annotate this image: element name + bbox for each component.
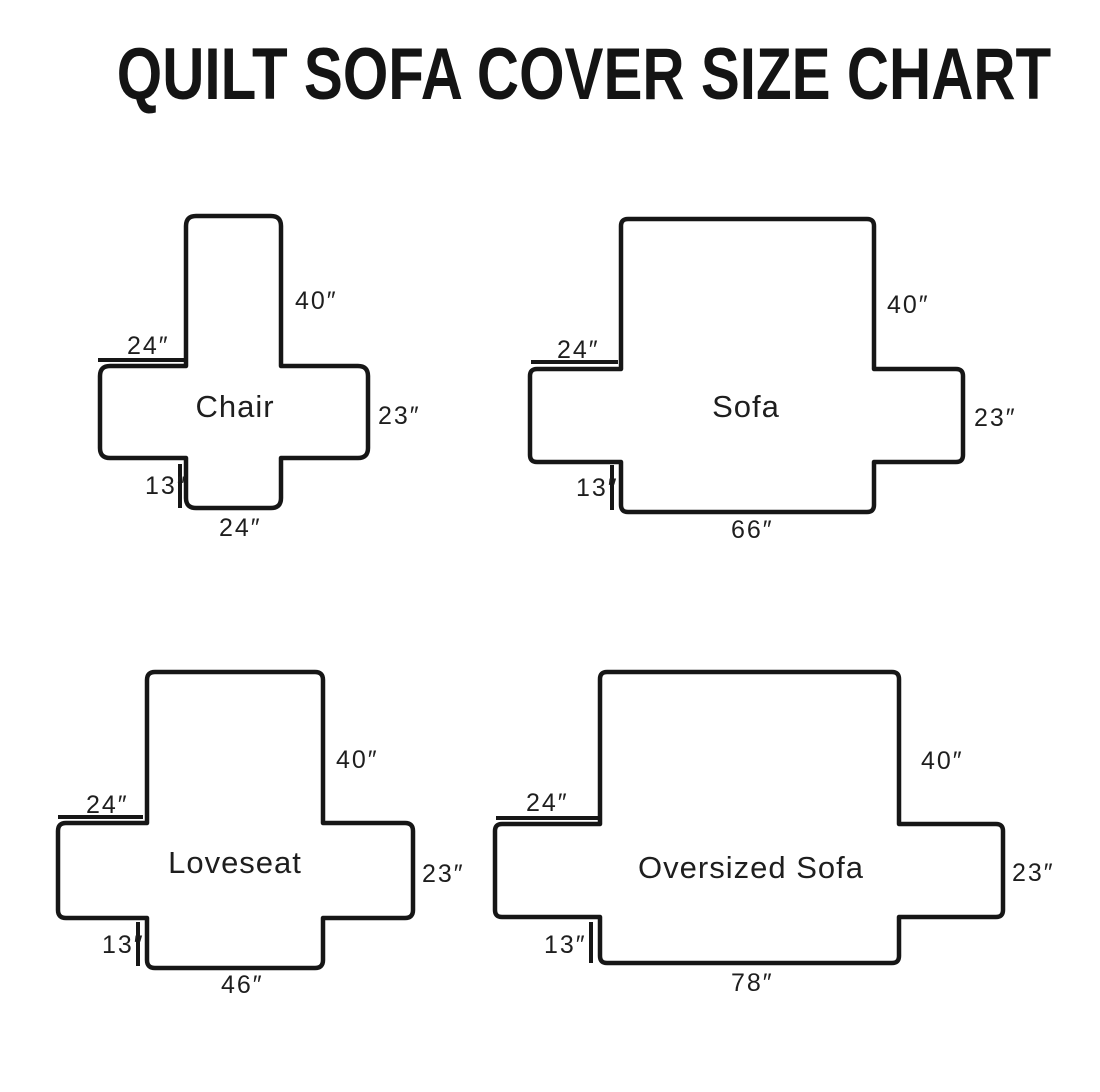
loveseat-name-label: Loveseat [168, 847, 302, 878]
shapes-layer [0, 0, 1100, 1092]
chair-name-label: Chair [195, 391, 274, 422]
sofa-outline [530, 219, 963, 512]
sofa-front-drop-label: 13″ [576, 476, 619, 501]
oversized-sofa-front-drop-label: 13″ [544, 933, 587, 958]
oversized-sofa-arm-width-label: 24″ [526, 791, 569, 816]
sofa-arm-width-label: 24″ [557, 338, 600, 363]
chair-bottom-width-label: 24″ [219, 516, 262, 541]
size-chart-page: QUILT SOFA COVER SIZE CHART Chair 40″ 24… [0, 0, 1100, 1092]
oversized-sofa-side-height-label: 23″ [1012, 861, 1055, 886]
loveseat-side-height-label: 23″ [422, 862, 465, 887]
sofa-side-height-label: 23″ [974, 406, 1017, 431]
oversized-sofa-name-label: Oversized Sofa [638, 852, 864, 883]
sofa-bottom-width-label: 66″ [731, 518, 774, 543]
oversized-sofa-bottom-width-label: 78″ [731, 971, 774, 996]
oversized-sofa-back-height-label: 40″ [921, 749, 964, 774]
chair-side-height-label: 23″ [378, 404, 421, 429]
sofa-back-height-label: 40″ [887, 293, 930, 318]
loveseat-arm-width-label: 24″ [86, 793, 129, 818]
sofa-name-label: Sofa [712, 391, 780, 422]
chair-front-drop-label: 13″ [145, 474, 188, 499]
loveseat-bottom-width-label: 46″ [221, 973, 264, 998]
loveseat-outline [58, 672, 413, 968]
chair-arm-width-label: 24″ [127, 334, 170, 359]
loveseat-back-height-label: 40″ [336, 748, 379, 773]
loveseat-front-drop-label: 13″ [102, 933, 145, 958]
chair-back-height-label: 40″ [295, 289, 338, 314]
